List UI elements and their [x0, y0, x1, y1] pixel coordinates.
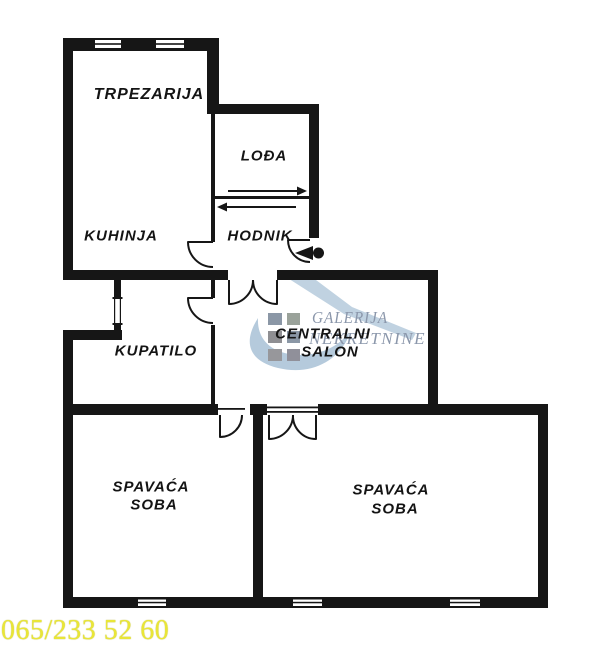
room-label-trpezarija: TRPEZARIJA [94, 86, 204, 104]
floorplan-page: GALERIJA NEKRETNINE TRPEZARIJA LOĐA KUHI… [0, 0, 600, 649]
room-label-bedroom-right-line1: SPAVAĆA [352, 482, 429, 499]
room-label-kuhinja: KUHINJA [84, 228, 158, 245]
watermark-logo-square [287, 349, 300, 361]
room-label-lodja: LOĐA [241, 148, 288, 165]
phone-number: 065/233 52 60 [1, 615, 169, 647]
watermark-logo-square [268, 313, 282, 325]
room-label-salon-line2: SALON [301, 344, 359, 361]
room-label-bedroom-left-line2: SOBA [130, 497, 177, 514]
room-label-salon-line1: CENTRALNI [275, 326, 371, 343]
door-threshold-lines [218, 407, 318, 413]
room-label-kupatilo: KUPATILO [115, 343, 197, 360]
watermark-logo-square [287, 313, 300, 325]
room-label-bedroom-right-line2: SOBA [371, 501, 418, 518]
watermark-logo-square [268, 349, 282, 361]
room-label-hodnik: HODNIK [227, 228, 292, 245]
floorplan-drawing [0, 0, 600, 649]
room-label-bedroom-left-line1: SPAVAĆA [112, 479, 189, 496]
walls [63, 38, 548, 608]
